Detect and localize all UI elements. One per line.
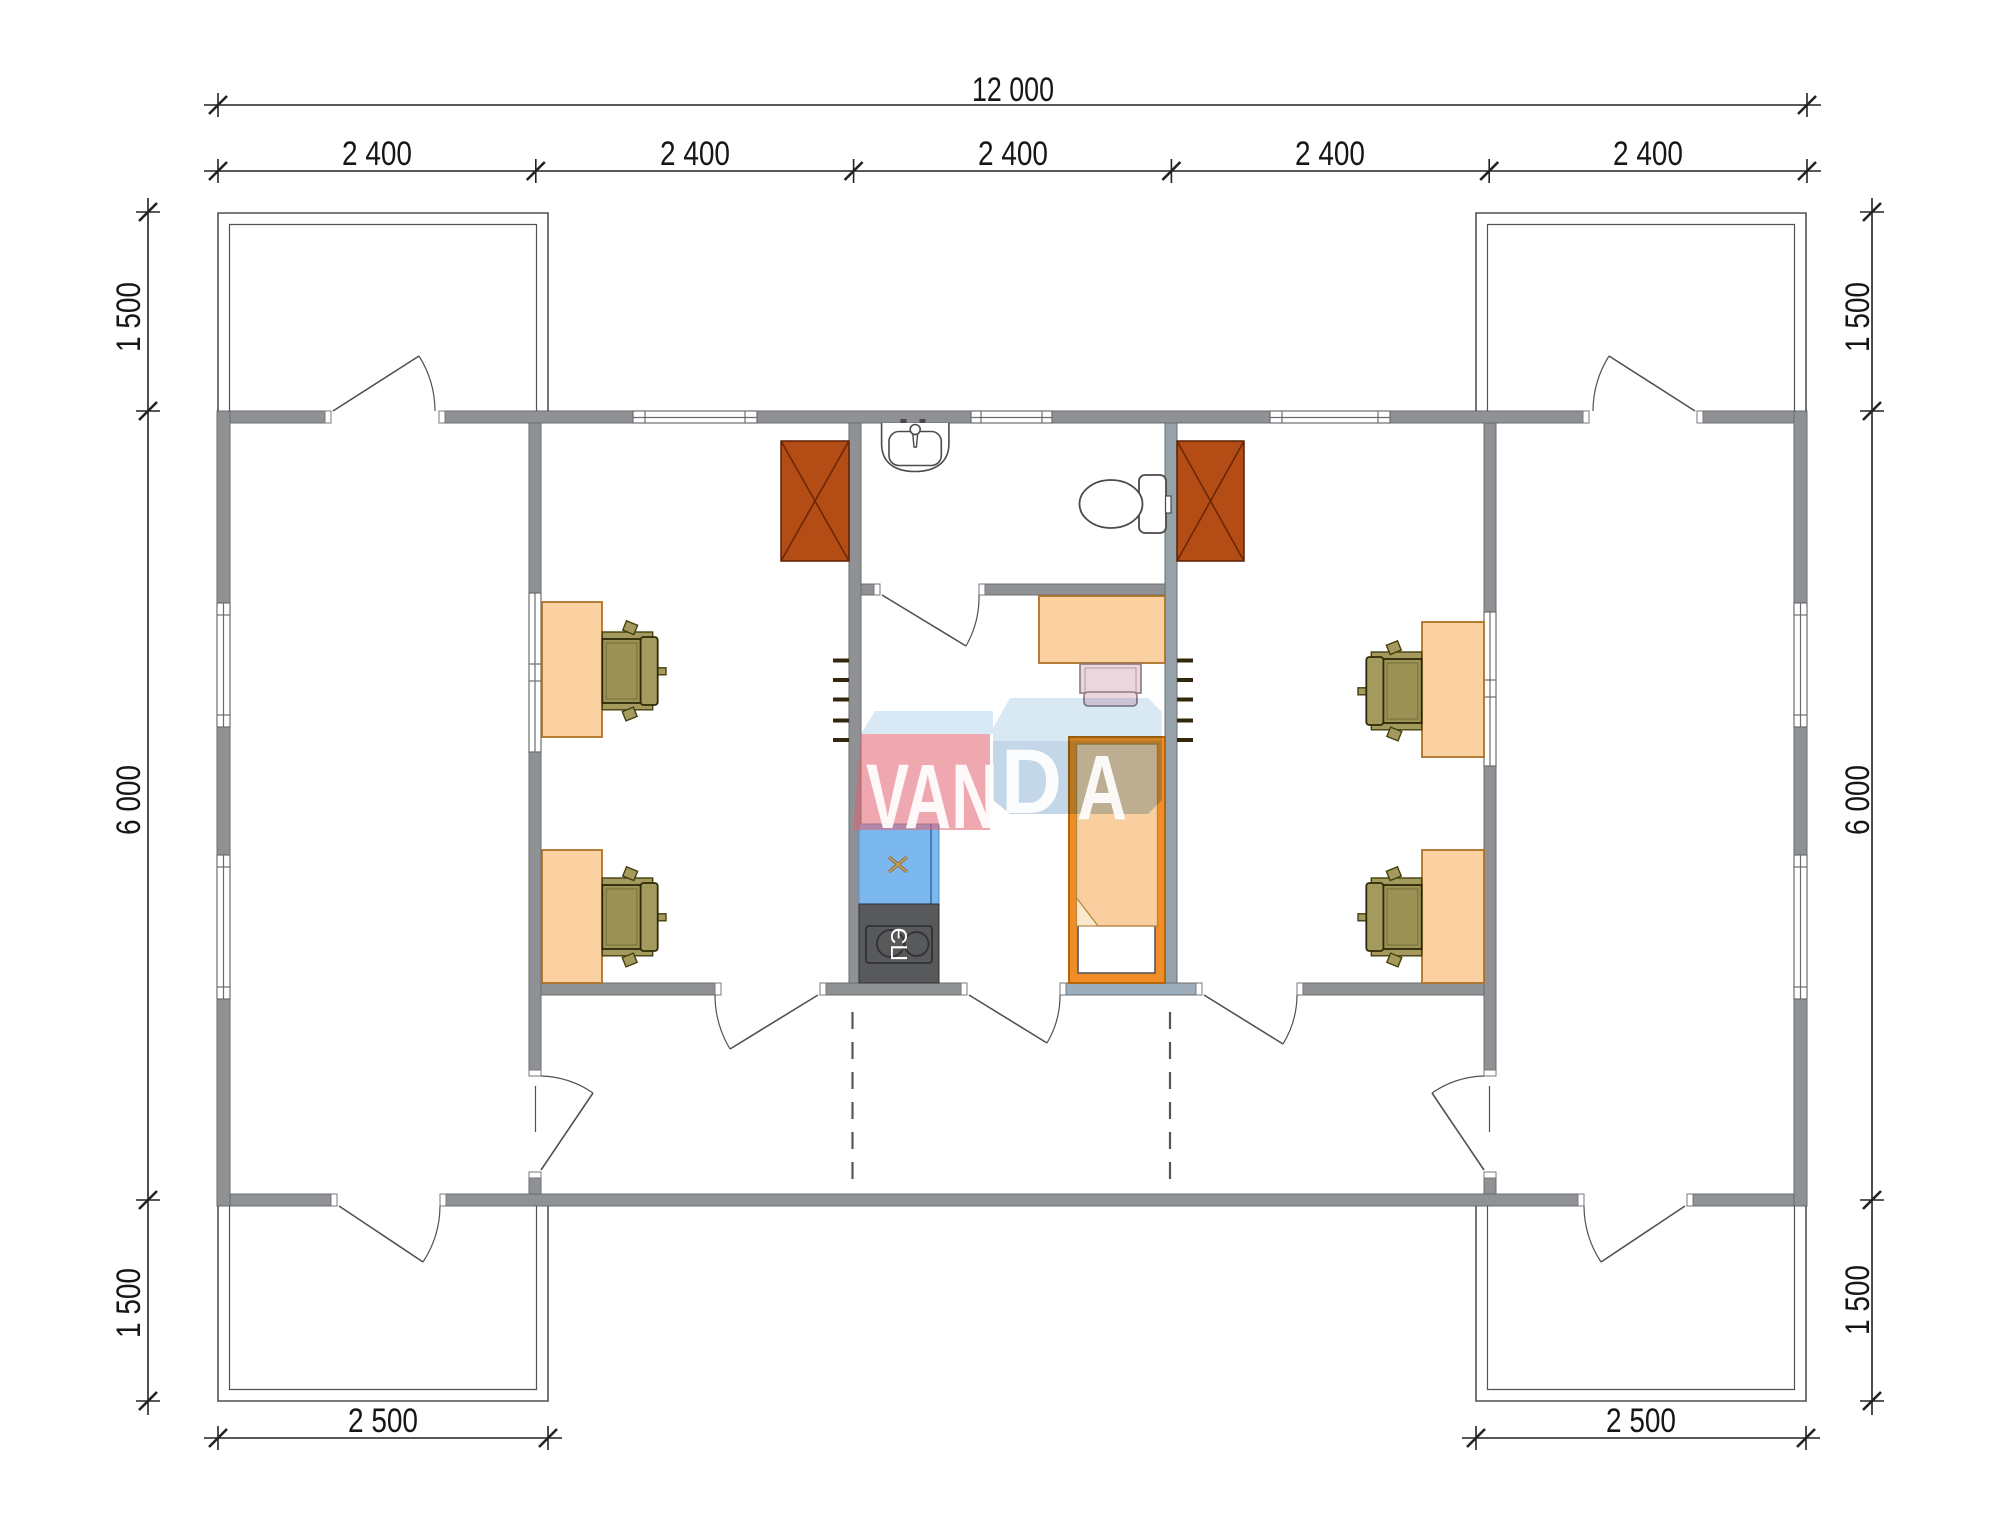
svg-text:2 400: 2 400 — [978, 135, 1048, 173]
svg-text:6 000: 6 000 — [1839, 765, 1877, 835]
svg-text:1 500: 1 500 — [110, 282, 148, 352]
svg-text:VAN: VAN — [866, 746, 998, 848]
svg-text:D: D — [1001, 731, 1062, 833]
svg-text:ПЭ: ПЭ — [886, 928, 912, 961]
svg-text:2 500: 2 500 — [1606, 1402, 1676, 1440]
svg-text:2 400: 2 400 — [660, 135, 730, 173]
svg-text:1 500: 1 500 — [1839, 1265, 1877, 1335]
svg-text:2 400: 2 400 — [342, 135, 412, 173]
svg-text:1 500: 1 500 — [110, 1268, 148, 1338]
svg-text:6 000: 6 000 — [110, 765, 148, 835]
svg-text:2 400: 2 400 — [1295, 135, 1365, 173]
svg-text:A: A — [1077, 737, 1127, 839]
svg-text:2 400: 2 400 — [1613, 135, 1683, 173]
svg-text:12 000: 12 000 — [972, 71, 1054, 109]
svg-text:1 500: 1 500 — [1839, 282, 1877, 352]
svg-text:2 500: 2 500 — [348, 1402, 418, 1440]
